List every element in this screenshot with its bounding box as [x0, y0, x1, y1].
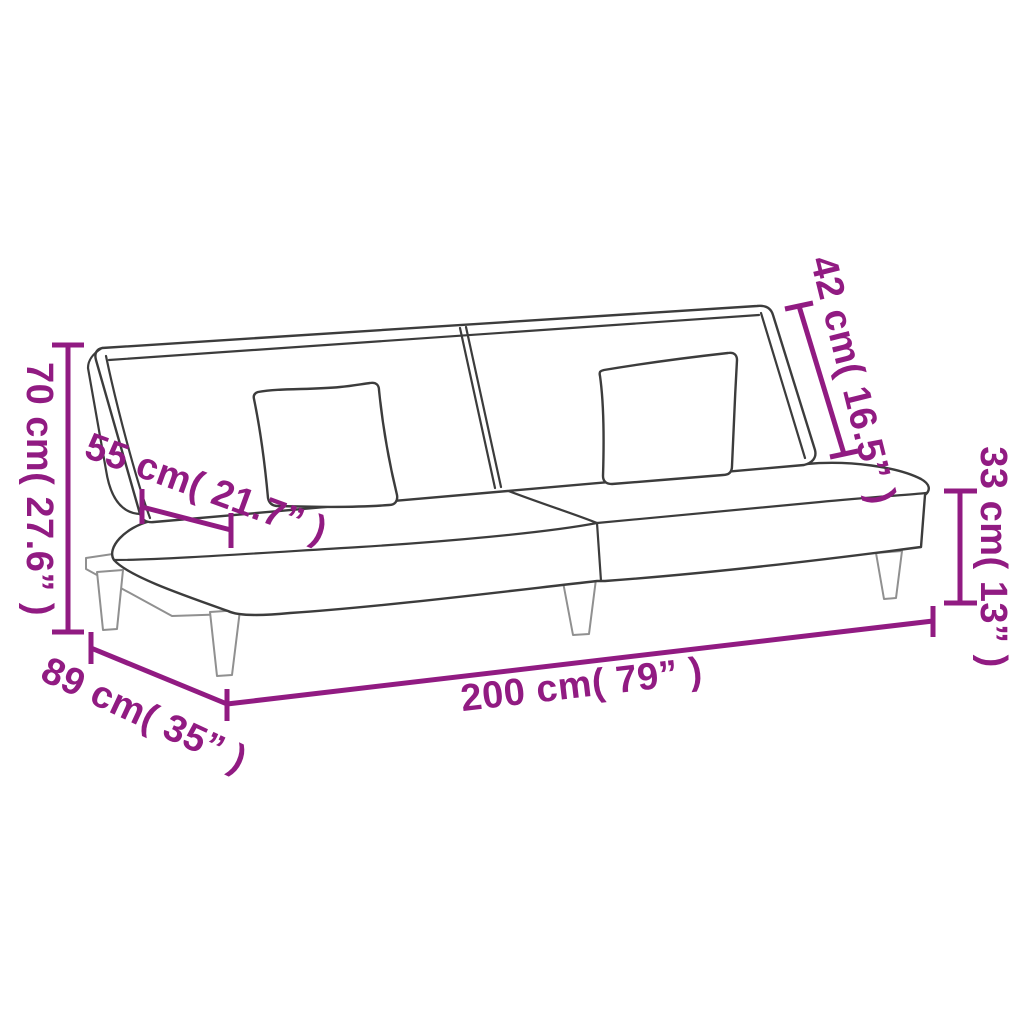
dimension-tick-top: [785, 303, 813, 309]
sofa-leg-back-left: [97, 570, 123, 630]
dimension-label-overall-height: 70 cm( 27.6” ): [18, 362, 60, 616]
dimension-seat-height: 33 cm( 13” ): [944, 446, 1014, 667]
dimension-label-seat-height: 33 cm( 13” ): [972, 446, 1014, 667]
sofa-pillow-right: [600, 353, 737, 484]
sofa-pillow-left: [254, 383, 397, 507]
sofa-leg-front-right: [876, 551, 902, 599]
sofa-dimension-diagram: 70 cm( 27.6” ) 55 cm( 21.7” ) 42 cm( 16.…: [0, 0, 1024, 1024]
sofa-leg-front-left: [210, 610, 240, 676]
dimension-diagram-canvas: 70 cm( 27.6” ) 55 cm( 21.7” ) 42 cm( 16.…: [0, 0, 1024, 1024]
sofa-leg-middle: [563, 579, 596, 635]
dimension-overall-height: 70 cm( 27.6” ): [18, 345, 84, 632]
